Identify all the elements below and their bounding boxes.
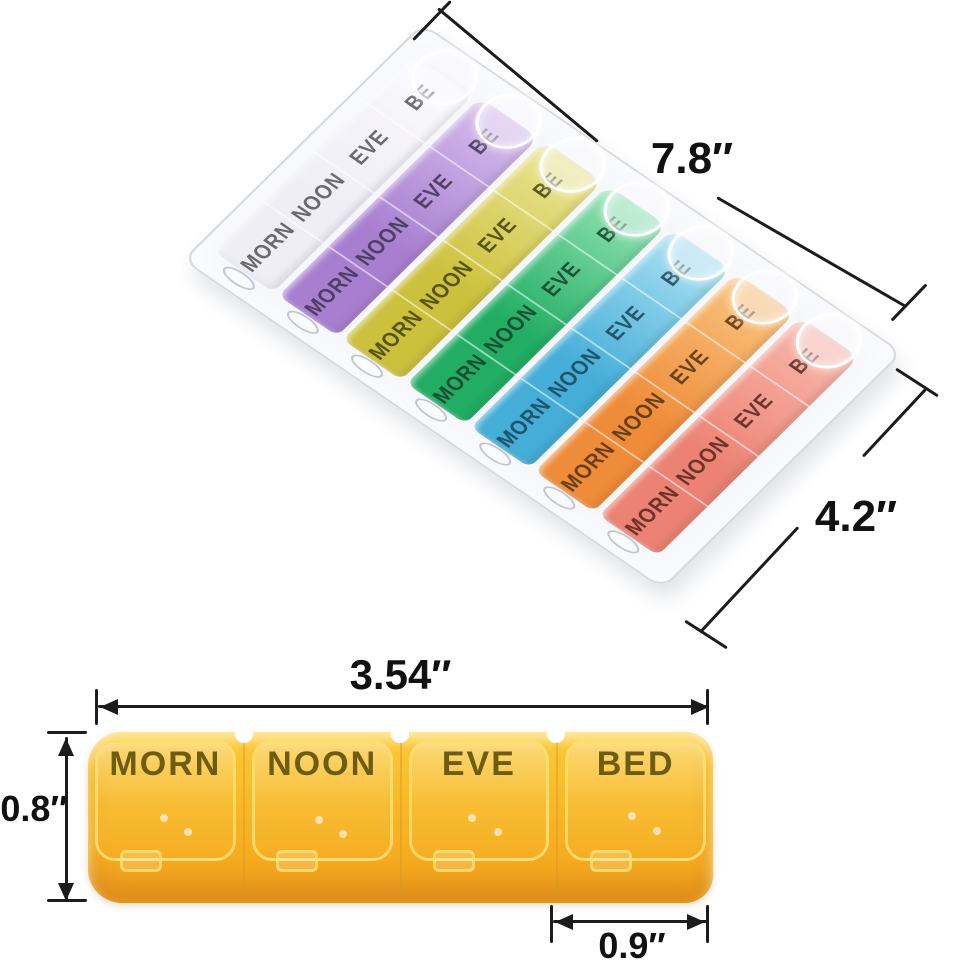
bubble-dot bbox=[184, 828, 192, 836]
compartment-label: NOON bbox=[671, 432, 736, 490]
compartment-label: EVE bbox=[537, 258, 588, 301]
compartment-label: EVE bbox=[729, 390, 780, 433]
compartment-label: EVE bbox=[665, 346, 716, 389]
compartment-label: NOON bbox=[287, 169, 352, 227]
dim-0.8-line bbox=[65, 737, 68, 901]
compartment-label: NOON bbox=[245, 745, 400, 784]
compartment-label: EVE bbox=[409, 170, 460, 213]
compartment-label: MORN bbox=[236, 219, 302, 277]
compartment-label: NOON bbox=[415, 257, 480, 315]
dim-0.9-right-tick bbox=[706, 905, 709, 943]
compartment-label: MORN bbox=[364, 306, 430, 364]
compartment-label: MORN bbox=[300, 262, 366, 320]
dim-0.9-left-tick bbox=[550, 905, 553, 943]
bubble-dot bbox=[494, 828, 502, 836]
arrowhead-up-icon bbox=[58, 738, 74, 756]
dim-0.9-label: 0.9″ bbox=[570, 927, 694, 960]
bubble-dot bbox=[315, 816, 323, 824]
compartment-label: NOON bbox=[479, 301, 544, 359]
day-strips: MORN NOON EVE BE MORN NOON EVE BE MORN N… bbox=[214, 53, 864, 559]
product-dimensions-image: MORN NOON EVE BE MORN NOON EVE BE MORN N… bbox=[0, 0, 960, 960]
compartment-bed: BED bbox=[556, 732, 713, 903]
arrowhead-left-icon bbox=[100, 699, 118, 715]
compartment-label: MORN bbox=[620, 482, 686, 540]
single-day-strip: MORN NOON EVE BED bbox=[88, 732, 713, 903]
compartment-morn: MORN bbox=[88, 732, 243, 903]
compartment-label: EVE bbox=[473, 214, 524, 257]
arrowhead-down-icon bbox=[58, 883, 74, 901]
compartment-label: NOON bbox=[351, 213, 416, 271]
dim-0.9-line bbox=[553, 920, 709, 923]
compartment-label: EVE bbox=[345, 126, 396, 169]
compartment-label: MORN bbox=[88, 745, 243, 784]
dim-4.2-label: 4.2″ bbox=[776, 494, 936, 540]
dim-3.54-label: 3.54″ bbox=[318, 653, 483, 697]
compartment-eve: EVE bbox=[400, 732, 557, 903]
compartment-label: MORN bbox=[556, 438, 622, 496]
compartment-label: MORN bbox=[492, 394, 558, 452]
compartment-noon: NOON bbox=[243, 732, 400, 903]
compartment-label: BED bbox=[558, 745, 713, 784]
compartment-label: EVE bbox=[402, 745, 557, 784]
dim-4.2-line-a bbox=[862, 388, 927, 457]
dim-7.8-label: 7.8″ bbox=[612, 136, 772, 182]
dim-3.54-line bbox=[98, 705, 709, 708]
arrowhead-right-icon bbox=[691, 699, 709, 715]
compartment-label: MORN bbox=[428, 350, 494, 408]
dim-4.2-line-b bbox=[699, 526, 799, 633]
compartment-label: NOON bbox=[543, 345, 608, 403]
bubble-dot bbox=[160, 814, 168, 822]
dim-4.2-end-tick bbox=[895, 368, 939, 398]
bubble-dot bbox=[468, 814, 476, 822]
bubble-dot bbox=[339, 830, 347, 838]
compartment-label: NOON bbox=[607, 389, 672, 447]
dim-0.8-top-tick bbox=[47, 731, 87, 734]
compartment-label: EVE bbox=[601, 302, 652, 345]
